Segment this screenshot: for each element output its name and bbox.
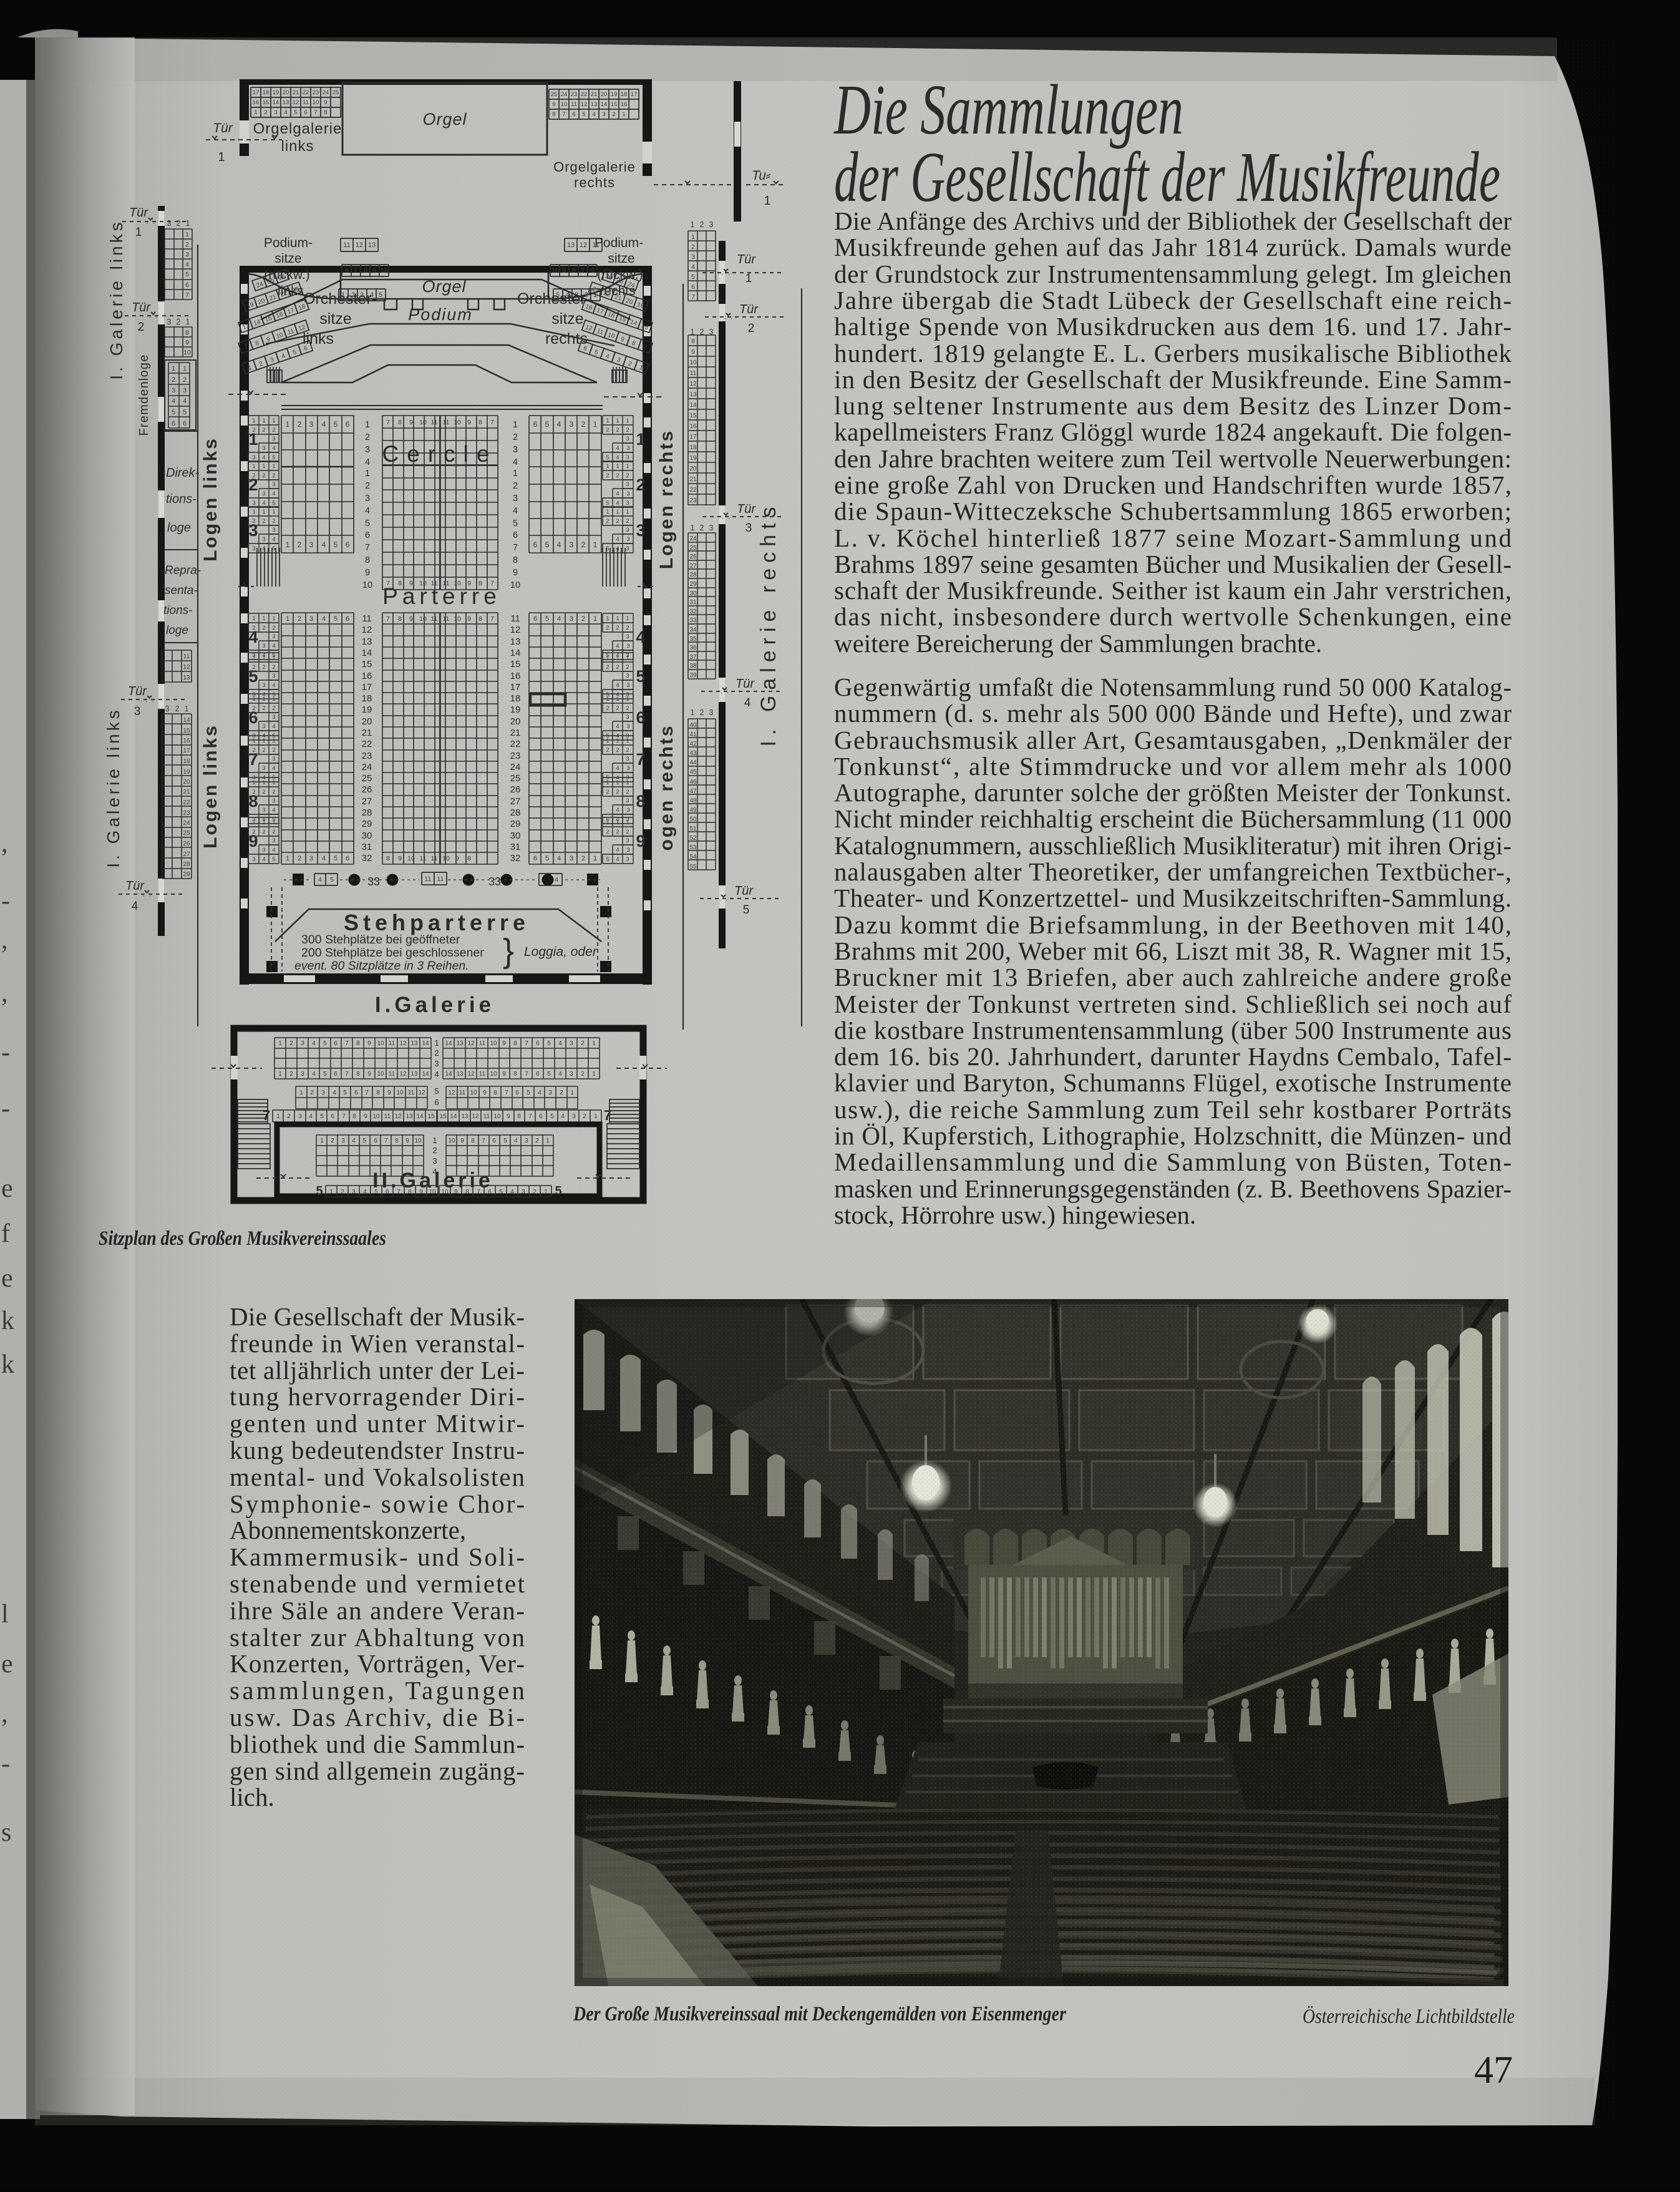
svg-text:9: 9 — [502, 1071, 506, 1078]
svg-text:4: 4 — [322, 615, 326, 623]
svg-text:9: 9 — [185, 339, 189, 346]
svg-text:5: 5 — [545, 420, 550, 429]
svg-text:2: 2 — [626, 427, 629, 434]
svg-text:freunde in Wien veranstal-: freunde in Wien veranstal- — [230, 1329, 525, 1358]
svg-text:19: 19 — [273, 89, 279, 96]
svg-text:16: 16 — [510, 671, 521, 681]
svg-text:1: 1 — [286, 855, 289, 862]
svg-text:14: 14 — [601, 101, 608, 108]
svg-text:8: 8 — [517, 1113, 521, 1120]
svg-text:11: 11 — [690, 370, 697, 377]
svg-text:5: 5 — [636, 667, 645, 686]
svg-text:1: 1 — [252, 463, 255, 470]
svg-text:usw.), die reiche Sammlung zum: usw.), die reiche Sammlung zum Teil sehr… — [834, 1095, 1512, 1124]
svg-text:3: 3 — [309, 540, 314, 549]
svg-text:11: 11 — [431, 419, 438, 426]
svg-text:1: 1 — [432, 1136, 437, 1145]
svg-text:7: 7 — [604, 1108, 611, 1123]
svg-text:4: 4 — [262, 454, 265, 461]
svg-text:5: 5 — [545, 855, 549, 862]
svg-text:23: 23 — [183, 810, 190, 817]
svg-text:4: 4 — [616, 454, 619, 461]
svg-text:2: 2 — [172, 376, 175, 384]
svg-text:9: 9 — [365, 568, 370, 578]
svg-text:4: 4 — [558, 1040, 562, 1047]
svg-text:4: 4 — [514, 1137, 518, 1144]
svg-text:8: 8 — [376, 1089, 380, 1096]
svg-text:1: 1 — [262, 417, 265, 424]
svg-text:9: 9 — [405, 1137, 409, 1144]
svg-text:15: 15 — [689, 412, 697, 419]
svg-text:27: 27 — [362, 796, 372, 807]
svg-text:2: 2 — [560, 1089, 563, 1096]
svg-text:8: 8 — [356, 1040, 360, 1047]
svg-text:Tu⸗: Tu⸗ — [752, 168, 771, 183]
svg-text:schaft der Musikfreunde. Seit: schaft der Musikfreunde. Seither ist kau… — [834, 576, 1512, 605]
svg-text:5: 5 — [547, 1071, 551, 1078]
svg-text:2: 2 — [262, 472, 265, 479]
svg-text:2: 2 — [606, 664, 609, 671]
svg-text:9: 9 — [324, 99, 327, 106]
svg-text:links: links — [281, 138, 314, 155]
svg-text:3: 3 — [248, 521, 258, 540]
svg-text:14: 14 — [422, 1071, 429, 1078]
svg-text:12: 12 — [394, 1113, 402, 1120]
svg-text:28: 28 — [183, 861, 190, 868]
svg-text:4: 4 — [132, 900, 138, 913]
svg-text:5: 5 — [330, 876, 334, 884]
svg-text:12: 12 — [467, 1040, 475, 1047]
svg-text:14: 14 — [183, 717, 190, 724]
svg-text:3: 3 — [626, 527, 629, 533]
svg-text:6: 6 — [591, 267, 595, 275]
svg-text:32: 32 — [689, 608, 697, 615]
svg-text:1: 1 — [691, 524, 695, 532]
svg-text:7: 7 — [345, 1071, 349, 1078]
svg-text:4: 4 — [513, 506, 518, 516]
svg-text:e: e — [1, 1650, 13, 1678]
svg-text:11: 11 — [443, 419, 450, 426]
svg-text:Musikfreunde gehen auf das Jah: Musikfreunde gehen auf das Jahr 1814 zur… — [834, 233, 1512, 261]
svg-text:36: 36 — [689, 645, 697, 651]
svg-text:20: 20 — [689, 465, 697, 472]
svg-text:der Grundstock zur Instrumente: der Grundstock zur Instrumentensammlung … — [834, 260, 1512, 288]
svg-text:9: 9 — [372, 267, 376, 275]
svg-text:17: 17 — [183, 748, 190, 754]
svg-text:1: 1 — [272, 655, 275, 661]
svg-text:1: 1 — [606, 463, 609, 470]
svg-text:9: 9 — [483, 1089, 487, 1096]
svg-text:3: 3 — [636, 521, 645, 540]
svg-text:3: 3 — [709, 708, 714, 717]
svg-text:Fremdenloge: Fremdenloge — [137, 354, 151, 436]
svg-text:17: 17 — [631, 91, 638, 98]
svg-text:49: 49 — [689, 807, 697, 814]
svg-text:20: 20 — [283, 89, 289, 96]
svg-text:14: 14 — [450, 1113, 457, 1120]
svg-text:11: 11 — [437, 875, 444, 883]
svg-text:2: 2 — [606, 789, 609, 796]
svg-text:3: 3 — [626, 500, 629, 507]
svg-text:1: 1 — [252, 696, 255, 703]
svg-text:2: 2 — [262, 664, 265, 671]
svg-text:40: 40 — [689, 722, 697, 729]
svg-text:2: 2 — [365, 481, 370, 491]
svg-text:1: 1 — [593, 615, 597, 623]
svg-text:1: 1 — [272, 615, 275, 622]
svg-text:6: 6 — [536, 1071, 540, 1078]
svg-text:5: 5 — [743, 904, 750, 917]
svg-text:3: 3 — [365, 445, 370, 455]
svg-text:14: 14 — [445, 1071, 452, 1078]
svg-text:Tür: Tür — [739, 303, 759, 316]
svg-text:5: 5 — [545, 540, 550, 549]
svg-text:18: 18 — [362, 693, 372, 704]
svg-text:1: 1 — [616, 779, 619, 786]
svg-text:1: 1 — [272, 738, 275, 744]
svg-text:3: 3 — [252, 545, 255, 552]
svg-text:2: 2 — [262, 518, 265, 525]
svg-text:4: 4 — [172, 397, 175, 405]
svg-text:2: 2 — [606, 829, 609, 835]
svg-text:2: 2 — [616, 705, 619, 712]
svg-text:25: 25 — [183, 830, 190, 837]
svg-text:Bruckner mit 13 Briefen, aber: Bruckner mit 13 Briefen, aber auch zahlr… — [834, 963, 1512, 991]
svg-text:1: 1 — [276, 1113, 280, 1120]
svg-text:1: 1 — [272, 696, 275, 703]
svg-text:3: 3 — [262, 536, 265, 543]
svg-text:in Öl, Kupferstich, Lithograph: in Öl, Kupferstich, Lithographie, Holzsc… — [834, 1121, 1512, 1150]
svg-text:5: 5 — [503, 1137, 507, 1144]
svg-text:1: 1 — [691, 708, 695, 717]
svg-text:1: 1 — [286, 420, 290, 429]
svg-text:7: 7 — [397, 1189, 401, 1196]
svg-text:11: 11 — [443, 615, 450, 623]
svg-text:32: 32 — [362, 853, 372, 864]
svg-text:4: 4 — [616, 536, 619, 543]
svg-text:8: 8 — [364, 267, 367, 275]
svg-text:2: 2 — [262, 789, 265, 796]
svg-text:8: 8 — [365, 555, 370, 565]
svg-text:Die Gesellschaft der Musik-: Die Gesellschaft der Musik- — [230, 1302, 525, 1331]
svg-text:9: 9 — [507, 1113, 510, 1120]
svg-text:3: 3 — [626, 682, 629, 689]
svg-text:1: 1 — [606, 738, 609, 744]
svg-text:22: 22 — [362, 739, 372, 749]
svg-text:3: 3 — [301, 1071, 304, 1078]
svg-text:4: 4 — [312, 1040, 316, 1047]
svg-text:2: 2 — [626, 705, 629, 712]
svg-text:9: 9 — [419, 1189, 423, 1196]
svg-text:10: 10 — [561, 101, 568, 108]
svg-text:Tür: Tür — [736, 677, 755, 691]
svg-text:2: 2 — [248, 475, 258, 494]
svg-text:5: 5 — [183, 409, 187, 416]
svg-text:2: 2 — [138, 321, 145, 334]
svg-text:4: 4 — [744, 696, 751, 709]
svg-text:1: 1 — [616, 417, 619, 424]
svg-text:44: 44 — [689, 759, 697, 766]
svg-text:31: 31 — [362, 842, 372, 852]
svg-text:,: , — [1, 926, 8, 955]
svg-text:9: 9 — [460, 1137, 464, 1144]
svg-text:3: 3 — [262, 445, 265, 452]
svg-text:2: 2 — [606, 427, 609, 434]
svg-text:33: 33 — [367, 875, 380, 888]
svg-text:3: 3 — [626, 536, 629, 543]
svg-text:4: 4 — [561, 1113, 565, 1120]
svg-text:2: 2 — [298, 420, 302, 429]
svg-text:6: 6 — [346, 540, 350, 549]
svg-text:nummern (d. s. mehr als 500 00: nummern (d. s. mehr als 500 000 Bände un… — [834, 699, 1512, 728]
svg-text:Orgelgalerie: Orgelgalerie — [553, 159, 636, 175]
svg-text:13: 13 — [362, 636, 372, 647]
svg-text:sitze: sitze — [608, 251, 634, 266]
svg-text:8: 8 — [513, 1071, 517, 1078]
svg-text:1: 1 — [252, 509, 255, 515]
svg-text:3: 3 — [626, 765, 629, 772]
svg-text:7: 7 — [185, 291, 189, 299]
svg-text:6: 6 — [488, 1189, 492, 1196]
svg-text:1: 1 — [616, 819, 619, 826]
svg-text:41: 41 — [689, 731, 697, 738]
svg-text:3: 3 — [626, 714, 629, 721]
svg-text:5: 5 — [334, 420, 338, 429]
svg-text:Österreichische Lichtbildstel: Österreichische Lichtbildstelle — [1303, 2005, 1515, 2028]
svg-text:gen sind allgemein zugäng-: gen sind allgemein zugäng- — [230, 1756, 525, 1785]
svg-text:10: 10 — [454, 419, 461, 426]
svg-text:8: 8 — [386, 855, 390, 862]
svg-text:kapellmeisters Franz Glöggl wu: kapellmeisters Franz Glöggl wurde 1824 a… — [834, 417, 1512, 446]
svg-text:14: 14 — [362, 648, 372, 658]
svg-text:2: 2 — [272, 829, 275, 835]
svg-text:2: 2 — [581, 615, 585, 623]
svg-text:1: 1 — [745, 272, 752, 285]
svg-text:3: 3 — [167, 318, 172, 326]
svg-text:9: 9 — [455, 855, 459, 862]
svg-text:7: 7 — [263, 1108, 270, 1123]
svg-text:1: 1 — [252, 655, 255, 661]
svg-text:2: 2 — [626, 518, 629, 525]
svg-text:3: 3 — [709, 524, 714, 532]
svg-text:1: 1 — [135, 226, 142, 239]
svg-text:7: 7 — [636, 750, 645, 769]
svg-text:33: 33 — [689, 617, 697, 624]
svg-text:6: 6 — [515, 1089, 519, 1096]
svg-text:19: 19 — [510, 704, 521, 715]
svg-text:7: 7 — [386, 419, 390, 426]
svg-text:21: 21 — [591, 91, 598, 98]
svg-text:1: 1 — [606, 509, 609, 515]
svg-text:Direk-: Direk- — [166, 466, 200, 480]
svg-text:k: k — [1, 1350, 14, 1379]
svg-text:3: 3 — [172, 387, 175, 394]
svg-text:6: 6 — [533, 615, 537, 623]
svg-text:1: 1 — [616, 463, 619, 470]
svg-text:4: 4 — [557, 615, 561, 623]
svg-text:3: 3 — [352, 1189, 356, 1196]
svg-text:Jahre übergab die Stadt Lübeck: Jahre übergab die Stadt Lübeck der Gesel… — [834, 286, 1512, 314]
svg-text:12: 12 — [581, 101, 588, 108]
svg-text:Tür: Tür — [125, 879, 145, 893]
svg-text:3: 3 — [434, 1059, 439, 1068]
svg-text:3: 3 — [309, 615, 313, 623]
svg-text:18: 18 — [621, 91, 628, 98]
svg-text:1: 1 — [616, 655, 619, 661]
svg-text:17: 17 — [253, 89, 260, 96]
svg-text:11: 11 — [425, 875, 432, 883]
svg-text:23: 23 — [571, 91, 578, 98]
svg-text:1: 1 — [248, 430, 258, 449]
svg-text:21: 21 — [293, 89, 299, 96]
svg-text:1: 1 — [764, 194, 770, 208]
svg-text:5: 5 — [547, 1040, 551, 1047]
svg-text:11: 11 — [183, 653, 190, 660]
svg-text:Cercle: Cercle — [382, 441, 498, 467]
svg-text:1: 1 — [218, 150, 225, 164]
svg-text:21: 21 — [510, 728, 521, 738]
svg-text:2: 2 — [616, 747, 619, 754]
svg-text:3: 3 — [272, 714, 275, 721]
svg-text:3: 3 — [252, 454, 255, 461]
svg-text:23: 23 — [313, 89, 319, 96]
svg-text:2: 2 — [434, 1048, 439, 1058]
svg-text:4: 4 — [513, 457, 518, 467]
svg-text:Sitzplan des Großen Musikve: Sitzplan des Großen Musikvereinssaales — [99, 1227, 386, 1250]
svg-text:tions-: tions- — [166, 492, 197, 506]
svg-text:1: 1 — [594, 1113, 598, 1120]
svg-text:9: 9 — [691, 349, 695, 356]
svg-text:sitze: sitze — [319, 310, 351, 328]
svg-text:1: 1 — [252, 417, 255, 424]
svg-text:2: 2 — [262, 625, 265, 631]
svg-text:3: 3 — [272, 797, 275, 804]
svg-text:7: 7 — [482, 1137, 485, 1144]
svg-text:tung hervorragender Diri-: tung hervorragender Diri- — [230, 1382, 525, 1411]
svg-text:2: 2 — [262, 705, 265, 712]
svg-text:2: 2 — [606, 518, 609, 525]
svg-text:2: 2 — [310, 1089, 314, 1096]
svg-text:Gebrauchsmusik aller Art, Gesa: Gebrauchsmusik aller Art, Gesamtausgaben… — [834, 726, 1512, 754]
svg-text:2: 2 — [616, 829, 619, 835]
svg-text:2: 2 — [606, 705, 609, 712]
svg-text:4: 4 — [557, 540, 561, 549]
svg-text:Tür: Tür — [737, 502, 756, 516]
svg-text:29: 29 — [362, 819, 372, 829]
svg-text:2: 2 — [616, 789, 619, 796]
svg-text:I.Galerie: I.Galerie — [375, 993, 495, 1017]
svg-text:2: 2 — [272, 664, 275, 671]
svg-text:21: 21 — [362, 728, 372, 738]
svg-text:stenabende und vermietet: stenabende und vermietet — [230, 1569, 525, 1598]
svg-text:Abonnementskonzerte,: Abonnementskonzerte, — [230, 1516, 466, 1544]
svg-text:Orgel: Orgel — [422, 110, 467, 129]
svg-text:5: 5 — [606, 856, 609, 863]
svg-text:12: 12 — [472, 1113, 479, 1120]
svg-text:9: 9 — [248, 832, 258, 850]
svg-text:5: 5 — [294, 109, 297, 116]
svg-text:5: 5 — [499, 1189, 503, 1196]
svg-text:Tür: Tür — [213, 121, 233, 135]
svg-text:1: 1 — [626, 696, 629, 703]
svg-text:8: 8 — [352, 1113, 356, 1120]
svg-text:2: 2 — [581, 540, 586, 549]
svg-text:11: 11 — [459, 1089, 466, 1096]
svg-text:13: 13 — [567, 241, 575, 249]
svg-text:1: 1 — [185, 704, 189, 713]
svg-text:13: 13 — [456, 1040, 464, 1047]
svg-text:14: 14 — [445, 1040, 452, 1047]
svg-text:2: 2 — [700, 220, 704, 229]
svg-text:2: 2 — [289, 1040, 293, 1047]
svg-text:3: 3 — [570, 420, 574, 429]
svg-text:1: 1 — [570, 1089, 574, 1096]
svg-text:Logen rechts: Logen rechts — [656, 429, 677, 569]
svg-text:27: 27 — [689, 563, 697, 570]
svg-text:43: 43 — [689, 750, 697, 757]
svg-text:Die Anfänge des Archivs und de: Die Anfänge des Archivs und der Biblioth… — [834, 207, 1512, 235]
svg-text:2: 2 — [616, 518, 619, 525]
svg-text:3: 3 — [626, 436, 629, 442]
svg-text:5: 5 — [606, 500, 609, 507]
svg-text:Podium-: Podium- — [264, 236, 313, 250]
svg-text:6: 6 — [572, 111, 575, 118]
svg-text:Katalognummern, ausschließlich: Katalognummern, ausschließlich Musiklite… — [834, 831, 1512, 860]
svg-text:4: 4 — [318, 876, 322, 884]
svg-text:1: 1 — [434, 1038, 439, 1048]
svg-text:das nicht, insbesondere durch: das nicht, insbesondere durch wertvolle … — [834, 602, 1512, 631]
svg-text:1: 1 — [186, 219, 190, 228]
svg-text:24: 24 — [561, 91, 568, 98]
svg-text:2: 2 — [183, 376, 187, 384]
svg-text:1: 1 — [185, 231, 189, 238]
svg-text:s: s — [1, 1818, 11, 1847]
svg-text:19: 19 — [611, 91, 618, 98]
svg-text:1: 1 — [329, 1189, 333, 1196]
svg-text:5: 5 — [248, 667, 258, 686]
svg-text:9: 9 — [398, 855, 402, 862]
svg-text:4: 4 — [262, 856, 265, 863]
svg-text:10: 10 — [551, 267, 559, 275]
svg-text:22: 22 — [689, 487, 697, 494]
svg-text:2: 2 — [581, 420, 586, 429]
svg-text:47: 47 — [689, 788, 697, 795]
svg-text:4: 4 — [616, 765, 619, 772]
svg-text:5: 5 — [185, 271, 189, 278]
svg-text:4: 4 — [363, 1189, 367, 1196]
svg-text:8: 8 — [465, 1189, 469, 1196]
svg-text:1: 1 — [626, 615, 629, 622]
svg-text:5: 5 — [527, 1089, 530, 1096]
svg-text:4: 4 — [248, 628, 258, 646]
svg-text:1: 1 — [606, 779, 609, 786]
svg-text:2: 2 — [177, 318, 181, 326]
svg-text:-: - — [1, 1038, 10, 1067]
svg-text:18: 18 — [689, 444, 697, 451]
svg-text:17: 17 — [362, 682, 372, 693]
svg-text:25: 25 — [333, 89, 339, 96]
svg-text:3: 3 — [262, 643, 265, 650]
svg-text:15: 15 — [510, 659, 521, 670]
svg-text:22: 22 — [510, 739, 521, 749]
svg-text:masken und Erinnerungsgegenstä: masken und Erinnerungsgegenständen (z. B… — [834, 1174, 1512, 1203]
svg-text:6: 6 — [533, 540, 538, 549]
svg-text:12: 12 — [362, 625, 372, 635]
svg-text:Tonkunst“, alte Stimmdrucke un: Tonkunst“, alte Stimmdrucke und vor alle… — [834, 752, 1512, 781]
svg-text:8: 8 — [478, 419, 482, 426]
svg-text:5: 5 — [334, 540, 338, 549]
svg-text:4: 4 — [352, 1137, 356, 1144]
